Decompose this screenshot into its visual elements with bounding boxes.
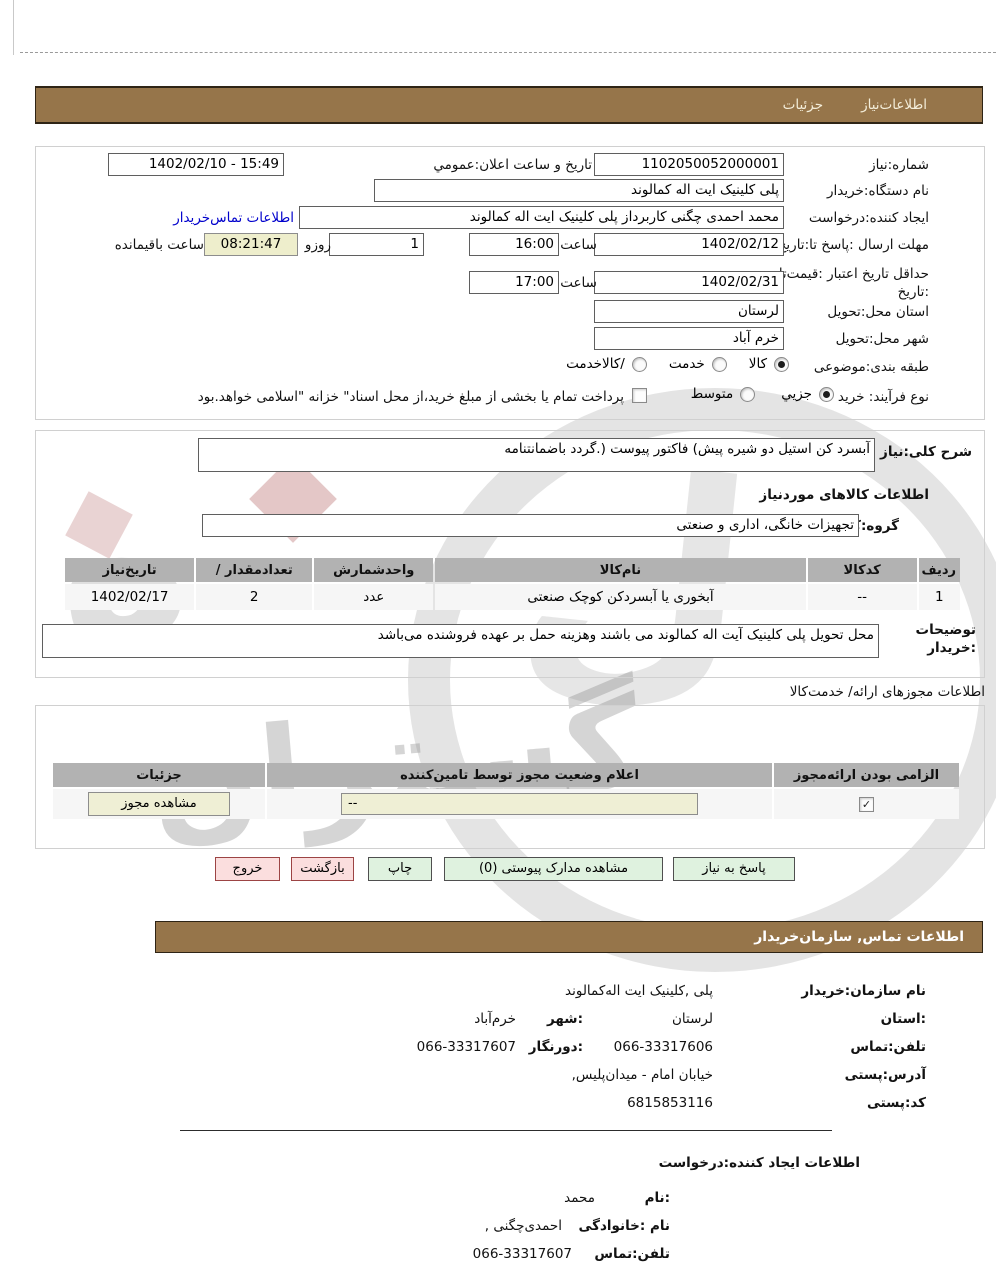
cell-license-status: -- [267,789,772,819]
creator-field[interactable]: محمد احمدی چگنی کاربرداز پلی کلینیک ایت … [299,206,784,229]
device-label: نام دستگاه:خریدار [827,183,929,199]
cell-unit: عدد [314,584,433,610]
col-date: تاریخ‌نیاز [65,558,194,582]
col-row: ردیف [919,558,960,582]
deadline-time-field[interactable]: 16:00 [469,233,559,256]
print-button[interactable]: چاپ [368,857,432,881]
org-name-value: پلی ,کلینیک ایت اله‌کمالوند [565,983,713,999]
buyer-contact-header: اطلاعات تماس, سازمان‌خریدار [155,921,983,953]
city-field[interactable]: خرم آباد [594,327,784,350]
contact-postal-value: 6815853116 [627,1095,713,1111]
contact-address-label: آدرس:پستی [845,1067,926,1083]
main-tabbar: اطلاعات‌نیاز جزئیات [35,86,983,124]
classification-label: طبقه بندی:موضوعی [814,359,929,375]
radio-partial-label: جزيي [781,386,812,402]
reply-to-need-button[interactable]: پاسخ به نیاز [673,857,795,881]
contact-phone-value: 066-33317606 [614,1039,713,1055]
license-table-header-row: الزامی بودن ارائه‌مجوز اعلام وضعیت مجوز … [53,763,959,787]
radio-icon [632,357,647,372]
view-attachments-button[interactable]: مشاهده مدارک پیوستی (0) [444,857,663,881]
group-field[interactable]: تجهیزات خانگی، اداری و صنعتی [202,514,859,537]
col-license-status: اعلام وضعیت مجوز توسط تامین‌کننده [267,763,772,787]
notes-label-line2: :خریدار [927,640,976,656]
requester-name-label: :نام [645,1190,670,1206]
radio-goods-service[interactable]: /کالاخدمت [566,356,647,372]
col-license-details: جزئیات [53,763,265,787]
notes-label-line1: توضیحات [916,622,976,638]
license-status-field[interactable]: -- [341,793,698,815]
goods-table: ردیف کدکالا نام‌کالا واحدشمارش تعدادمقدا… [63,556,962,612]
creator-label: ایجاد کننده:درخواست [809,210,929,226]
radio-selected-icon [774,357,789,372]
tab-need-info[interactable]: اطلاعات‌نیاز [861,97,927,113]
treasury-checkbox[interactable] [632,388,647,403]
cell-code: -- [808,584,917,610]
validity-date-field[interactable]: 1402/02/31 [594,271,784,294]
province-field[interactable]: لرستان [594,300,784,323]
need-number-label: شماره:نیاز [869,157,929,173]
validity-label-line2: :تاریخ [898,284,929,300]
process-radiogroup: جزيي متوسط [691,386,834,402]
cell-license-required: ✓ [774,789,959,819]
requester-phone-value: 066-33317607 [473,1246,572,1262]
radio-selected-icon [819,387,834,402]
buyer-contact-link[interactable]: اطلاعات تماس‌خریدار [173,210,294,226]
tab-details[interactable]: جزئیات [783,97,823,113]
col-license-required: الزامی بودن ارائه‌مجوز [774,763,959,787]
need-number-field[interactable]: 1102050052000001 [594,153,784,176]
section-divider [180,1130,832,1131]
province-label: استان محل:تحویل [827,304,929,320]
radio-goods-label: کالا [749,356,767,372]
exit-button[interactable]: خروج [215,857,280,881]
goods-info-heading: اطلاعات کالاهای موردنیاز [759,487,929,503]
validity-label-line1: حداقل تاریخ اعتبار :قیمت‌تا [779,266,929,282]
validity-time-field[interactable]: 17:00 [469,271,559,294]
radio-medium[interactable]: متوسط [691,386,755,402]
buyer-contact-title: اطلاعات تماس, سازمان‌خریدار [754,929,964,945]
page: ه ل گستران اطلاعات‌نیاز جزئیات شماره:نیا… [0,0,996,1279]
city-label: شهر محل:تحویل [836,331,929,347]
requester-family-value: احمدی‌چگنی , [485,1218,562,1234]
cell-row: 1 [919,584,960,610]
back-button[interactable]: بازگشت [291,857,354,881]
classification-radiogroup: کالا خدمت /کالاخدمت [566,356,789,372]
radio-goods[interactable]: کالا [749,356,789,372]
remaining-time-badge: 08:21:47 [204,233,298,256]
radio-service[interactable]: خدمت [669,356,727,372]
requester-name-value: محمد [564,1190,595,1206]
contact-address-value: خیابان امام - میدان‌پلیس, [572,1067,713,1083]
cell-qty: 2 [196,584,312,610]
remaining-label: ساعت باقیمانده [115,237,204,253]
col-qty: تعدادمقدار / [196,558,312,582]
page-edge-line [13,0,14,55]
hour-label: ساعت [560,237,597,253]
license-table: الزامی بودن ارائه‌مجوز اعلام وضعیت مجوز … [51,761,961,821]
treasury-note-label: پرداخت تمام یا بخشی از مبلغ خرید،از محل … [198,389,624,405]
col-code: کدکالا [808,558,917,582]
goods-table-header-row: ردیف کدکالا نام‌کالا واحدشمارش تعدادمقدا… [65,558,960,582]
radio-partial[interactable]: جزيي [781,386,834,402]
radio-medium-label: متوسط [691,386,733,402]
license-panel: الزامی بودن ارائه‌مجوز اعلام وضعیت مجوز … [35,705,985,849]
contact-province-label: :استان [881,1011,926,1027]
checked-checkbox-icon[interactable]: ✓ [859,797,874,812]
cell-name: آبخوری یا آبسردکن کوچک صنعتی [435,584,805,610]
contact-fax-value: 066-33317607 [417,1039,516,1055]
contact-city-label: :شهر [547,1011,583,1027]
contact-city-value: خرم‌آباد [474,1011,516,1027]
cell-license-details: مشاهده مجوز [53,789,265,819]
days-field[interactable]: 1 [329,233,424,256]
radio-icon [712,357,727,372]
contact-province-value: لرستان [672,1011,713,1027]
contact-phone-label: تلفن:تماس [850,1039,926,1055]
table-row[interactable]: 1 -- آبخوری یا آبسردکن کوچک صنعتی عدد 2 … [65,584,960,610]
cell-date: 1402/02/17 [65,584,194,610]
radio-icon [740,387,755,402]
need-info-panel: شماره:نیاز 1102050052000001 تاریخ و ساعت… [35,146,985,420]
description-label: شرح کلی:نیاز [880,444,972,460]
requester-phone-label: تلفن:تماس [594,1246,670,1262]
view-license-button[interactable]: مشاهده مجوز [88,792,230,816]
deadline-label: مهلت ارسال :پاسخ تا:تاریخ [778,237,929,253]
table-row: ✓ -- مشاهده مجوز [53,789,959,819]
buyer-notes-field[interactable]: محل تحویل پلی کلینیک آیت اله کمالوند می … [42,624,879,658]
col-unit: واحدشمارش [314,558,433,582]
deadline-date-field[interactable]: 1402/02/12 [594,233,784,256]
contact-postal-label: کد:پستی [867,1095,926,1111]
contact-fax-label: :دورنگار [529,1039,583,1055]
announce-label: تاریخ و ساعت اعلان:عمومي [433,157,592,173]
description-field[interactable]: آبسرد کن استیل دو شیره پیش) فاکتور پیوست… [198,438,875,472]
license-section-title: اطلاعات مجوزهای ارائه/ خدمت‌کالا [790,684,985,700]
device-field[interactable]: پلی کلینیک ایت اله کمالوند [374,179,784,202]
requester-family-label: نام :خانوادگی [578,1218,670,1234]
top-dashed-divider [20,52,996,53]
announce-field[interactable]: 15:49 - 1402/02/10 [108,153,284,176]
org-name-label: نام سازمان:خریدار [801,983,926,999]
days-label: روزو [305,237,331,253]
hour-label: ساعت [560,275,597,291]
radio-service-label: خدمت [669,356,705,372]
radio-goods-service-label: /کالاخدمت [566,356,625,372]
requester-section-title: اطلاعات ایجاد کننده:درخواست [659,1155,860,1171]
col-name: نام‌کالا [435,558,805,582]
process-label: نوع فرآیند: خرید [838,389,929,405]
goods-panel: شرح کلی:نیاز آبسرد کن استیل دو شیره پیش)… [35,430,985,678]
